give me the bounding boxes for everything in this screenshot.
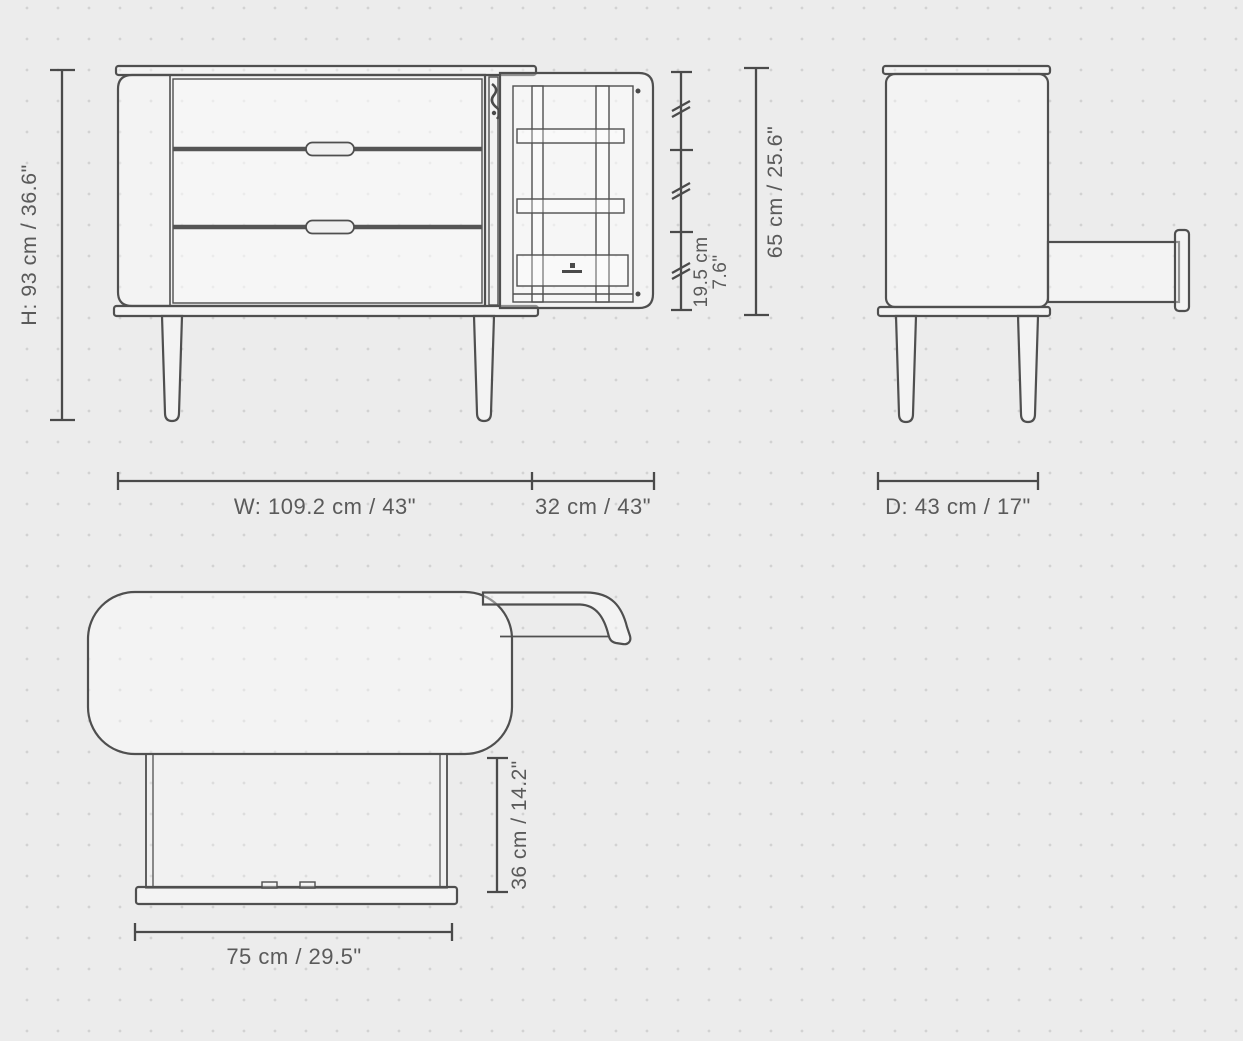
top-drawer-front: [136, 887, 457, 904]
dimension-diagram: H: 93 cm / 36.6" 19.5 cm 7.6" 65 cm / 25…: [0, 0, 1243, 1041]
brand-logo-text-icon: [562, 270, 582, 273]
shelf-spacing-cm-label: 19.5 cm: [691, 236, 712, 307]
brand-logo-icon: [570, 263, 575, 268]
front-view: [114, 66, 538, 421]
drawer-handle-2: [306, 221, 354, 234]
side-body: [886, 74, 1048, 307]
front-left-leg: [162, 316, 182, 421]
top-view: [88, 592, 630, 904]
side-right-leg: [1018, 316, 1038, 422]
side-bottom-rail: [878, 307, 1050, 316]
width-label: W: 109.2 cm / 43": [234, 494, 416, 519]
side-top-plate: [883, 66, 1050, 74]
drawer-extension-label: 36 cm / 14.2": [508, 760, 531, 890]
side-view: [878, 66, 1189, 422]
front-top-plate: [116, 66, 536, 75]
dim-drawer-extension: 36 cm / 14.2": [487, 758, 531, 892]
top-drawer-notch-1: [262, 882, 277, 888]
dim-drawer-width: 75 cm / 29.5": [135, 923, 452, 969]
top-open-drawer: [146, 754, 447, 888]
interior-height-label: 65 cm / 25.6": [763, 126, 787, 258]
height-label: H: 93 cm / 36.6": [17, 164, 41, 325]
shelf-rail-2: [517, 199, 624, 213]
shelf-spacing-in-label: 7.6": [710, 254, 731, 289]
drawer-width-label: 75 cm / 29.5": [226, 944, 361, 969]
depth-label: D: 43 cm / 17": [885, 494, 1031, 519]
dim-depth: D: 43 cm / 17": [878, 472, 1038, 519]
dim-shelf-spacing: 19.5 cm 7.6": [670, 72, 731, 310]
dim-width: W: 109.2 cm / 43" 32 cm / 43": [118, 472, 654, 519]
interior-compartment: [500, 73, 653, 308]
front-bottom-rail: [114, 306, 538, 316]
dim-interior-height: 65 cm / 25.6": [744, 68, 787, 315]
front-right-leg: [474, 316, 494, 421]
screw-bottom-icon: [636, 292, 641, 297]
drawer-stack-frame: [173, 79, 482, 303]
dim-height: H: 93 cm / 36.6": [17, 70, 75, 420]
shelf-rail-1: [517, 129, 624, 143]
top-drawer-notch-2: [300, 882, 315, 888]
drawer-handle-1: [306, 143, 354, 156]
side-open-door-panel: [1175, 230, 1189, 311]
door-open-width-label: 32 cm / 43": [535, 494, 651, 519]
hinge-pin-icon: [492, 111, 496, 115]
side-left-leg: [896, 316, 916, 422]
top-body: [88, 592, 512, 754]
side-open-door-band: [1048, 242, 1179, 302]
screw-top-icon: [636, 89, 641, 94]
